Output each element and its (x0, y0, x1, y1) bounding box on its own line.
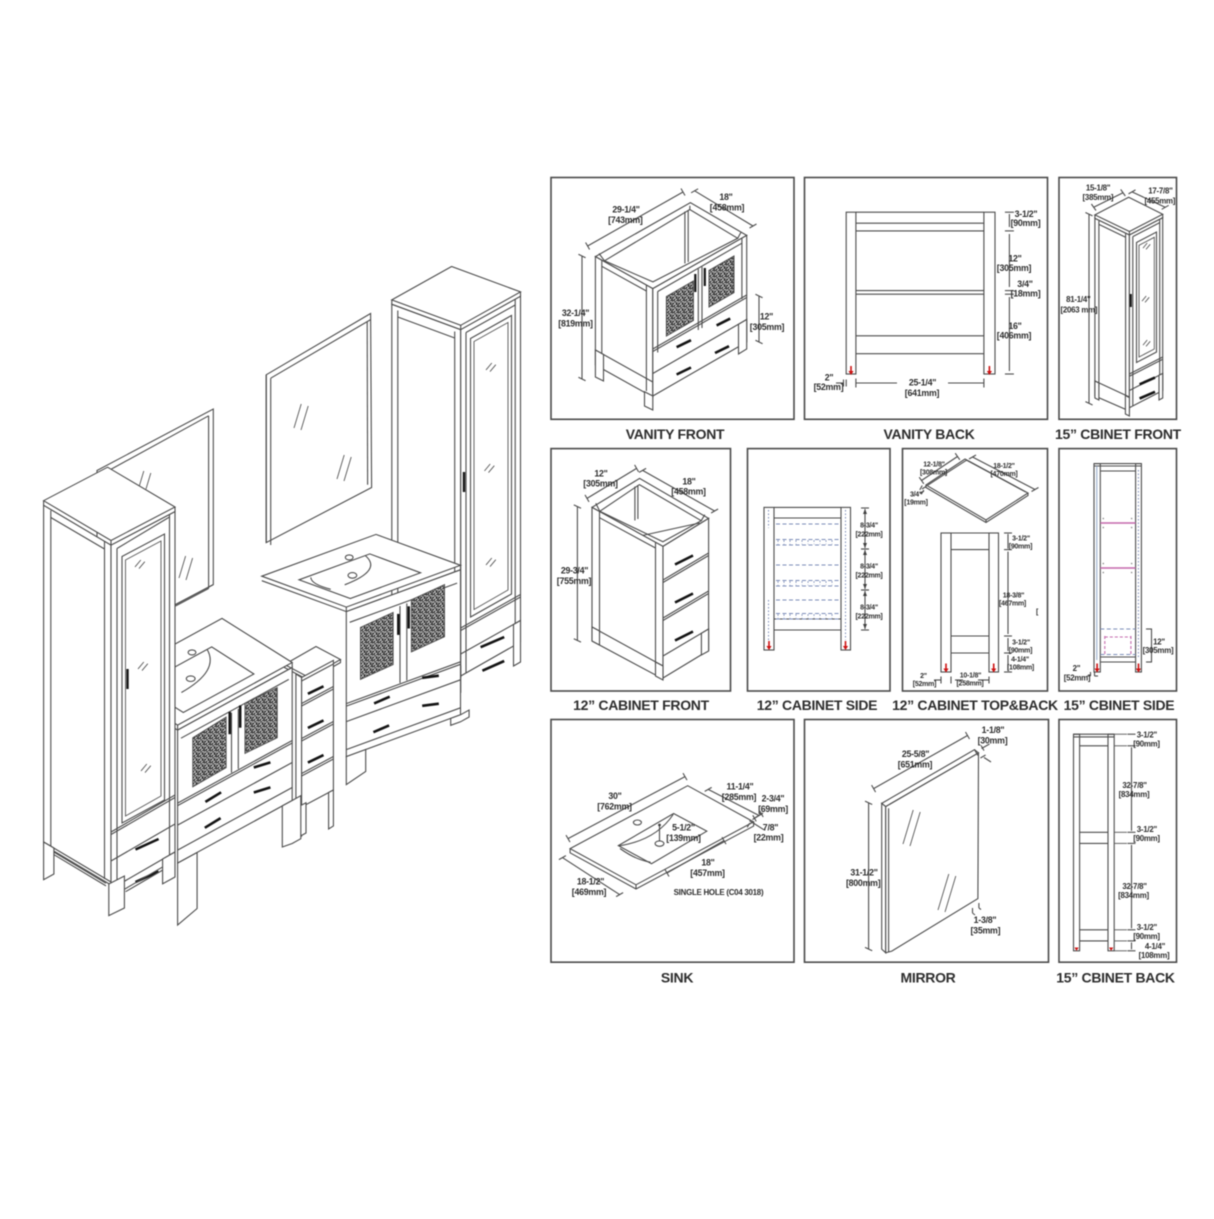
svg-text:12-1/8": 12-1/8" (923, 462, 944, 469)
svg-text:3-1/2": 3-1/2" (1137, 731, 1158, 740)
svg-text:17-7/8": 17-7/8" (1148, 187, 1173, 196)
svg-text:[470mm]: [470mm] (990, 471, 1017, 478)
svg-text:2": 2" (825, 373, 834, 383)
svg-text:[819mm]: [819mm] (558, 319, 593, 329)
svg-text:[90mm]: [90mm] (1133, 834, 1160, 843)
svg-text:[52mm]: [52mm] (1064, 674, 1091, 683)
svg-text:[469mm]: [469mm] (572, 887, 607, 897)
svg-text:12” CABINET TOP&BACK: 12” CABINET TOP&BACK (892, 697, 1058, 713)
svg-text:[467mm]: [467mm] (999, 601, 1026, 608)
svg-text:3-1/2": 3-1/2" (1012, 640, 1030, 647)
svg-text:5-1/2": 5-1/2" (672, 823, 695, 833)
svg-text:18-3/8": 18-3/8" (1003, 593, 1024, 600)
svg-text:2": 2" (1073, 664, 1081, 673)
svg-text:3-1/2": 3-1/2" (1137, 923, 1158, 932)
svg-text:8-3/4": 8-3/4" (860, 564, 878, 571)
svg-text:[743mm]: [743mm] (608, 215, 643, 225)
svg-text:[90mm]: [90mm] (1011, 218, 1041, 228)
svg-text:[258mm]: [258mm] (956, 681, 983, 688)
svg-text:[222mm]: [222mm] (855, 573, 882, 580)
svg-text:[22mm]: [22mm] (754, 833, 784, 843)
svg-text:[90mm]: [90mm] (1009, 648, 1032, 655)
svg-text:29-3/4": 29-3/4" (561, 566, 588, 576)
svg-text:[458mm]: [458mm] (710, 202, 745, 212)
svg-text:SINGLE HOLE (C04 3018): SINGLE HOLE (C04 3018) (674, 888, 764, 897)
svg-text:3/4": 3/4" (910, 492, 922, 499)
svg-text:[35mm]: [35mm] (971, 925, 1001, 935)
svg-text:81-1/4": 81-1/4" (1066, 295, 1091, 304)
svg-text:25-5/8": 25-5/8" (902, 749, 929, 759)
svg-text:3/4": 3/4" (1017, 279, 1032, 289)
svg-text:18-1/2": 18-1/2" (993, 463, 1014, 470)
svg-text:25-1/4": 25-1/4" (909, 378, 936, 388)
svg-text:18": 18" (682, 477, 695, 487)
svg-text:[90mm]: [90mm] (1133, 740, 1160, 749)
svg-text:12": 12" (760, 312, 773, 322)
svg-text:[755mm]: [755mm] (557, 576, 592, 586)
svg-text:15-1/8": 15-1/8" (1086, 184, 1111, 193)
svg-text:31-1/2": 31-1/2" (850, 868, 877, 878)
svg-text:11-1/4": 11-1/4" (727, 782, 754, 792)
svg-text:[285mm]: [285mm] (722, 792, 757, 802)
svg-text:12” CABINET SIDE: 12” CABINET SIDE (757, 697, 877, 713)
svg-text:4-1/4": 4-1/4" (1145, 942, 1166, 951)
svg-text:MIRROR: MIRROR (901, 970, 956, 986)
svg-text:[90mm]: [90mm] (1133, 932, 1160, 941)
svg-text:[406mm]: [406mm] (997, 331, 1032, 341)
svg-text:15” CBINET SIDE: 15” CBINET SIDE (1064, 697, 1175, 713)
svg-text:1-3/8": 1-3/8" (974, 915, 997, 925)
svg-text:[455mm]: [455mm] (1144, 196, 1175, 205)
svg-text:SINK: SINK (661, 970, 693, 986)
svg-text:12": 12" (1008, 254, 1021, 264)
svg-text:[108mm]: [108mm] (1139, 951, 1170, 960)
svg-text:16": 16" (1008, 321, 1021, 331)
svg-text:[19mm]: [19mm] (904, 500, 927, 507)
svg-text:[305mm]: [305mm] (750, 322, 785, 332)
svg-text:[52mm]: [52mm] (913, 681, 936, 688)
svg-text:[18mm]: [18mm] (1011, 289, 1041, 299)
svg-text:10-1/8": 10-1/8" (960, 673, 981, 680)
svg-text:[108mm]: [108mm] (1007, 665, 1034, 672)
svg-text:18": 18" (701, 858, 714, 868)
svg-text:8-3/4": 8-3/4" (860, 523, 878, 530)
svg-text:[762mm]: [762mm] (597, 802, 632, 812)
svg-text:15” CBINET FRONT: 15” CBINET FRONT (1055, 426, 1182, 442)
svg-text:32-1/4": 32-1/4" (562, 308, 589, 318)
svg-text:[457mm]: [457mm] (690, 868, 725, 878)
svg-text:18": 18" (719, 192, 732, 202)
svg-text:8-3/4": 8-3/4" (860, 605, 878, 612)
svg-text:2": 2" (920, 673, 927, 680)
svg-text:2-3/4": 2-3/4" (762, 794, 785, 804)
svg-text:[90mm]: [90mm] (1009, 544, 1032, 551)
svg-text:[834mm]: [834mm] (1118, 891, 1149, 900)
svg-text:VANITY FRONT: VANITY FRONT (626, 426, 725, 442)
svg-text:[651mm]: [651mm] (898, 760, 933, 770)
svg-text:12” CABINET FRONT: 12” CABINET FRONT (573, 697, 709, 713)
svg-text:7/8": 7/8" (763, 823, 778, 833)
svg-text:12": 12" (594, 469, 607, 479)
svg-text:32-7/8": 32-7/8" (1122, 882, 1147, 891)
svg-text:[222mm]: [222mm] (855, 614, 882, 621)
svg-text:32-7/8": 32-7/8" (1122, 781, 1147, 790)
svg-text:[458mm]: [458mm] (671, 487, 706, 497)
svg-text:[30mm]: [30mm] (978, 736, 1008, 746)
svg-text:[52mm]: [52mm] (814, 382, 844, 392)
svg-text:18-1/2": 18-1/2" (577, 877, 604, 887)
svg-text:[139mm]: [139mm] (666, 833, 701, 843)
svg-text:[305mm]: [305mm] (997, 263, 1032, 273)
svg-text:30": 30" (608, 791, 621, 801)
svg-text:1-1/8": 1-1/8" (982, 725, 1005, 735)
svg-text:15” CBINET BACK: 15” CBINET BACK (1056, 970, 1175, 986)
svg-text:[834mm]: [834mm] (1119, 790, 1150, 799)
svg-text:3-1/2": 3-1/2" (1137, 825, 1158, 834)
svg-text:3-1/2": 3-1/2" (1012, 536, 1030, 543)
svg-text:[641mm]: [641mm] (905, 388, 940, 398)
svg-text:[305mm]: [305mm] (583, 479, 618, 489)
svg-text:[800mm]: [800mm] (846, 878, 881, 888)
svg-text:[222mm]: [222mm] (855, 532, 882, 539)
svg-text:VANITY BACK: VANITY BACK (883, 426, 974, 442)
svg-text:[385mm]: [385mm] (1083, 193, 1114, 202)
svg-text:[308mm]: [308mm] (920, 470, 947, 477)
svg-text:[305mm]: [305mm] (1143, 646, 1174, 655)
svg-text:[69mm]: [69mm] (758, 804, 788, 814)
svg-text:29-1/4": 29-1/4" (612, 205, 639, 215)
svg-text:[2063 mm]: [2063 mm] (1061, 305, 1098, 314)
svg-text:4-1/4": 4-1/4" (1011, 657, 1029, 664)
